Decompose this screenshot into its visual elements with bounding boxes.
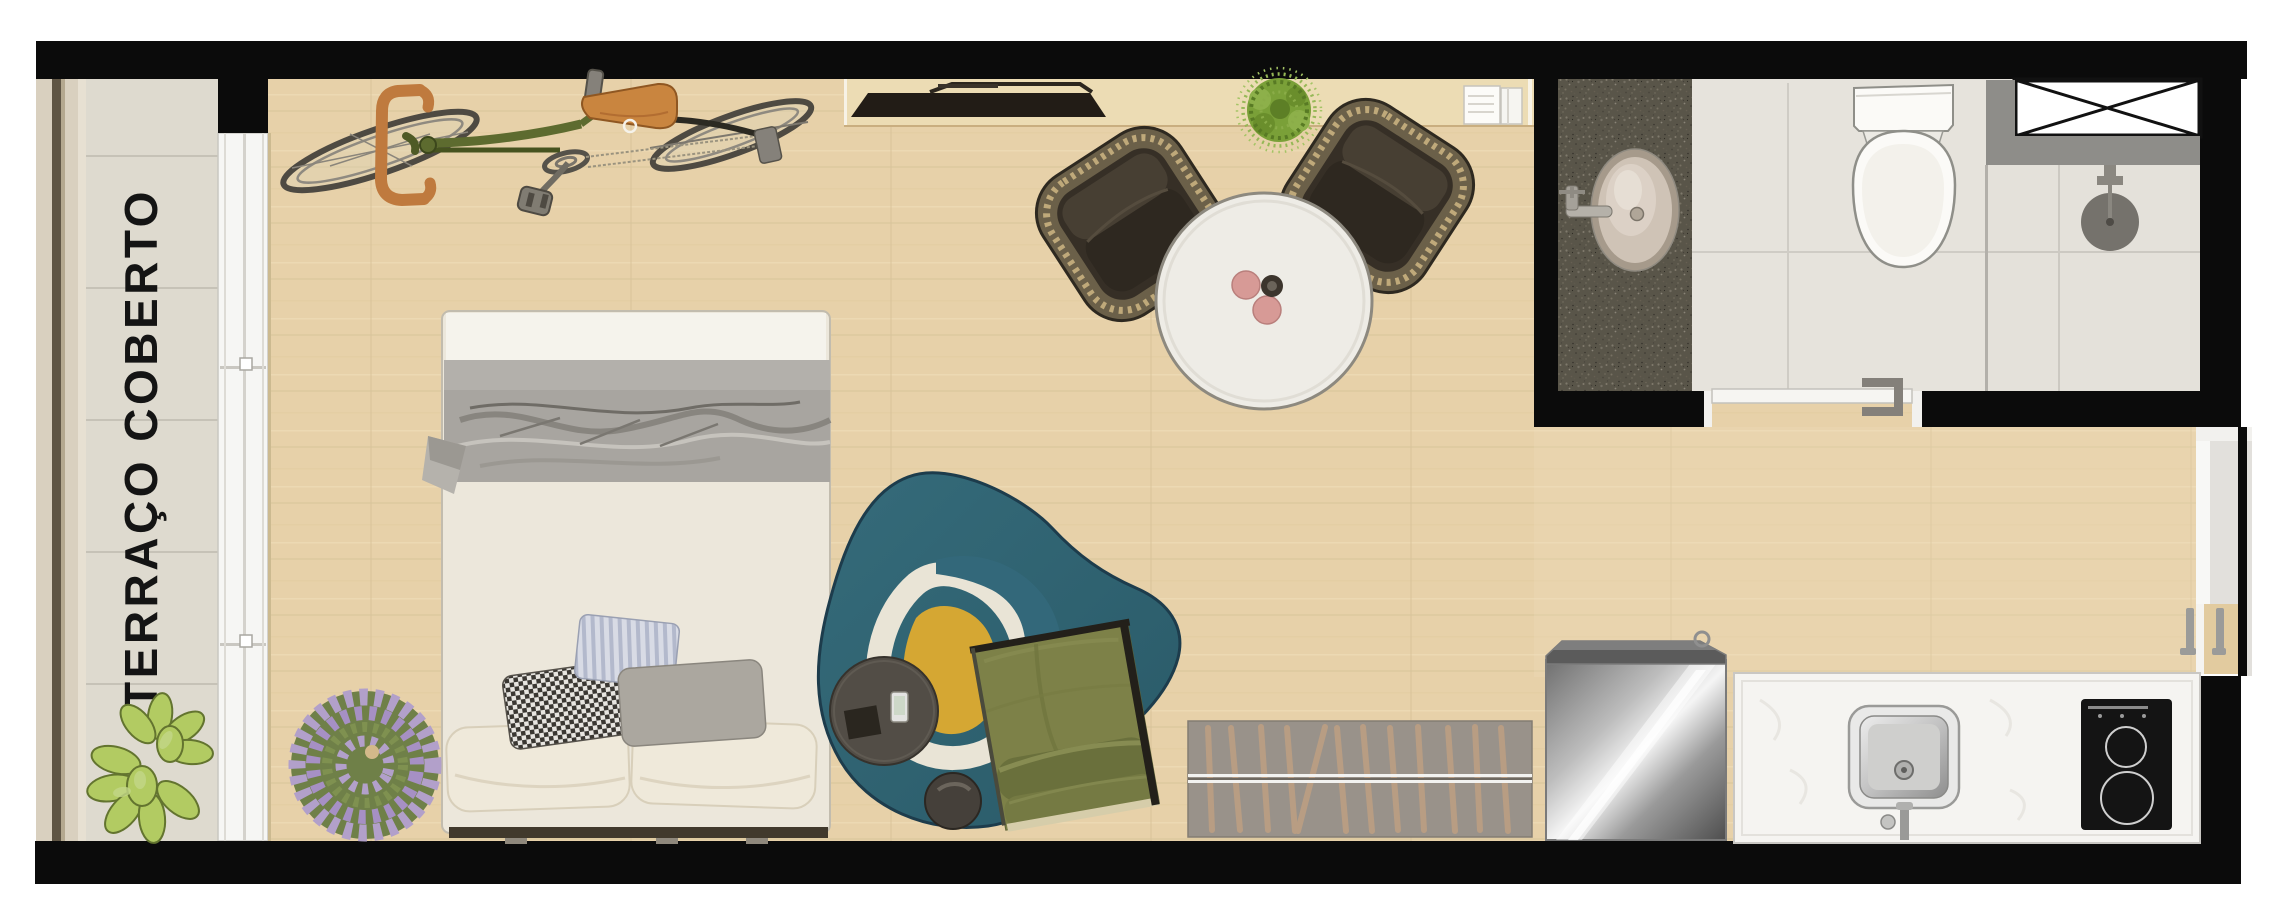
svg-text:TERRAÇO COBERTO: TERRAÇO COBERTO: [115, 188, 167, 710]
